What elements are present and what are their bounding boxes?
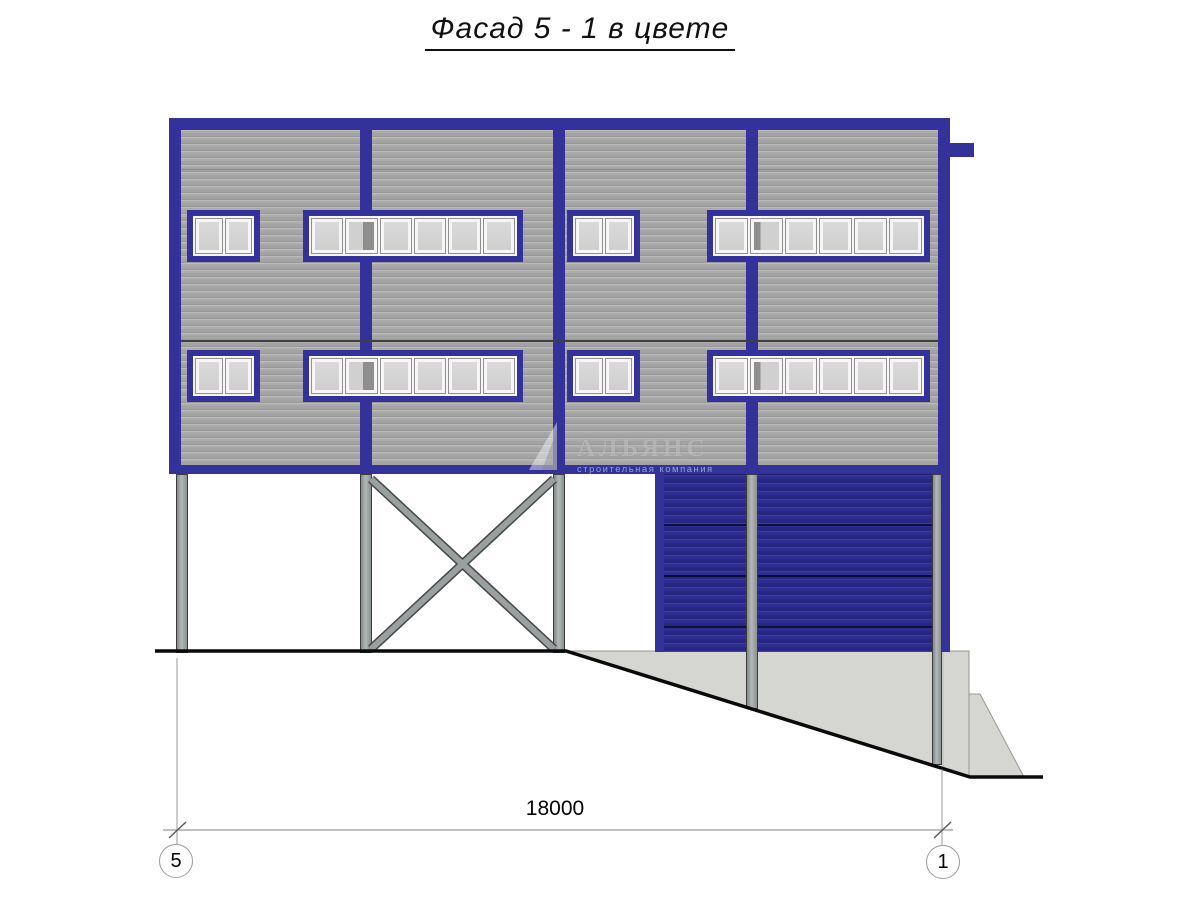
company-watermark: АЛЬЯНС строительная компания [527,422,714,475]
steel-column [746,474,758,709]
company-logo-icon [527,422,567,472]
axis-marker-5: 5 [159,844,193,878]
frame-mullion [746,130,758,465]
axis-marker-1: 1 [926,845,960,879]
x-bracing [371,479,554,649]
floor-separator-line [181,340,938,342]
building-facade [169,118,950,474]
drawing-title-wrap: Фасад 5 - 1 в цвете [0,12,1160,51]
frame-mullion [360,130,372,465]
steel-column [553,474,565,653]
concrete-retaining-wall [565,651,969,776]
frame-mullion [553,130,565,465]
steel-column [360,474,372,653]
roof-gutter-tab [946,143,974,157]
drawing-title: Фасад 5 - 1 в цвете [425,12,736,51]
drawing-canvas: АЛЬЯНС строительная компания Фасад 5 - 1… [0,0,1200,900]
watermark-name: АЛЬЯНС [577,436,714,461]
concrete-step [969,694,1024,777]
garage-gate-right [758,474,932,652]
dimension-value: 18000 [455,797,655,821]
watermark-subtitle: строительная компания [577,464,714,475]
garage-gate-left [664,474,746,652]
gate-frame-left [655,474,664,652]
ground-line [155,651,1043,777]
steel-column [932,474,942,765]
steel-column [176,474,188,653]
